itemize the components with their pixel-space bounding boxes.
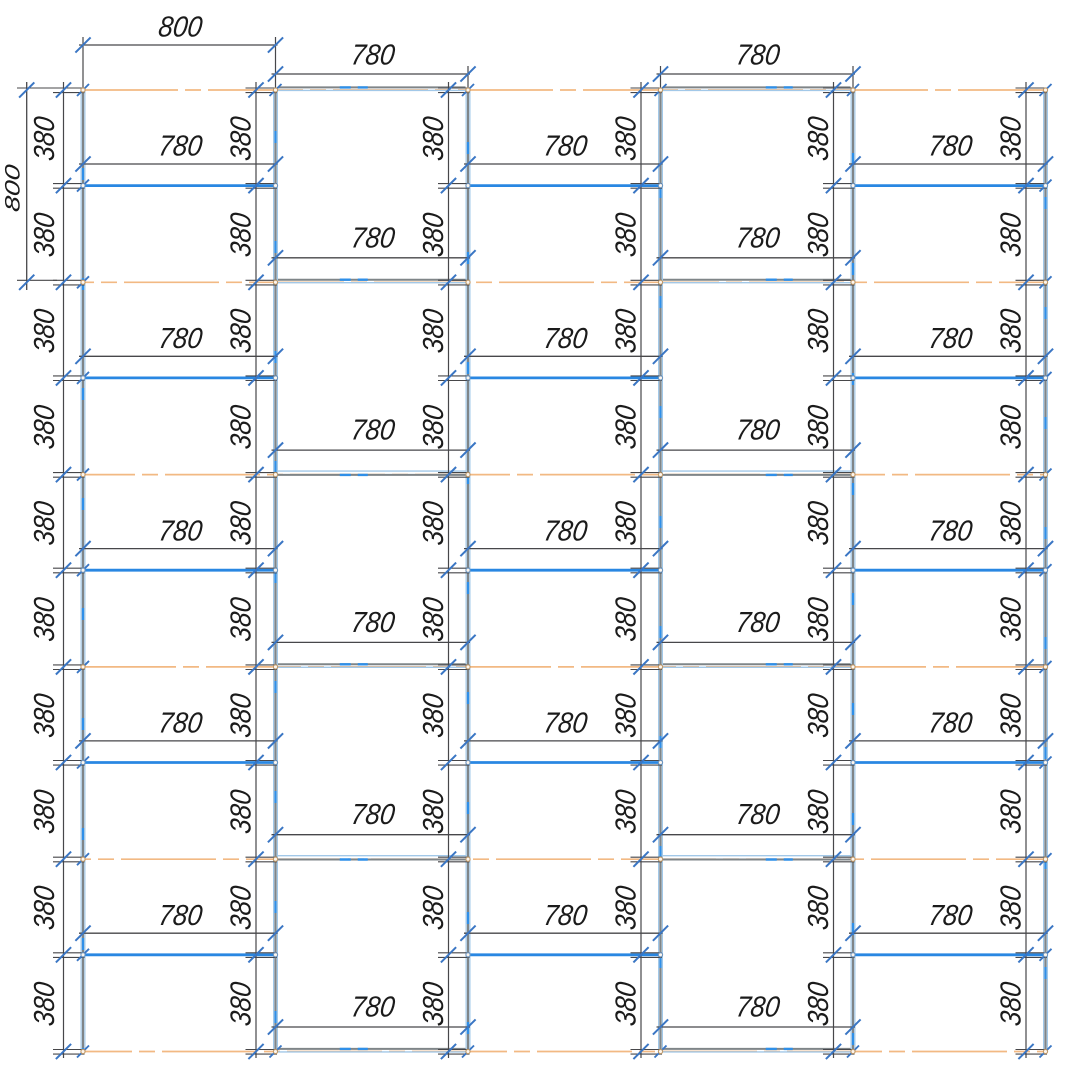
svg-text:780: 780 <box>349 40 396 72</box>
svg-text:800: 800 <box>1 163 24 213</box>
svg-text:380: 380 <box>29 307 61 354</box>
svg-text:380: 380 <box>610 307 642 354</box>
svg-text:380: 380 <box>418 500 450 547</box>
svg-text:380: 380 <box>29 596 61 643</box>
svg-text:780: 780 <box>927 131 974 163</box>
svg-text:380: 380 <box>29 211 61 258</box>
svg-text:380: 380 <box>995 788 1027 835</box>
svg-text:380: 380 <box>610 403 642 450</box>
svg-text:380: 380 <box>803 500 835 547</box>
svg-text:380: 380 <box>610 980 642 1027</box>
svg-text:380: 380 <box>418 980 450 1027</box>
svg-text:780: 780 <box>157 708 204 740</box>
svg-text:380: 380 <box>610 788 642 835</box>
svg-text:780: 780 <box>734 40 781 72</box>
svg-text:380: 380 <box>803 596 835 643</box>
svg-text:380: 380 <box>225 211 257 258</box>
svg-text:380: 380 <box>225 115 257 162</box>
svg-text:380: 380 <box>225 596 257 643</box>
svg-text:380: 380 <box>803 211 835 258</box>
svg-text:380: 380 <box>418 884 450 931</box>
svg-text:380: 380 <box>418 403 450 450</box>
svg-text:380: 380 <box>610 211 642 258</box>
svg-text:780: 780 <box>542 515 589 547</box>
svg-text:380: 380 <box>803 115 835 162</box>
svg-text:380: 380 <box>610 692 642 739</box>
svg-text:380: 380 <box>995 692 1027 739</box>
svg-text:780: 780 <box>349 992 396 1024</box>
svg-text:380: 380 <box>418 692 450 739</box>
svg-text:380: 380 <box>29 500 61 547</box>
svg-text:780: 780 <box>157 131 204 163</box>
svg-text:780: 780 <box>927 323 974 355</box>
svg-text:780: 780 <box>157 323 204 355</box>
svg-text:780: 780 <box>734 222 781 254</box>
svg-text:780: 780 <box>542 708 589 740</box>
svg-text:380: 380 <box>418 211 450 258</box>
svg-text:380: 380 <box>29 884 61 931</box>
svg-text:380: 380 <box>225 980 257 1027</box>
svg-text:380: 380 <box>995 884 1027 931</box>
svg-text:780: 780 <box>157 515 204 547</box>
svg-text:380: 380 <box>29 403 61 450</box>
svg-text:800: 800 <box>157 12 204 44</box>
svg-text:380: 380 <box>225 884 257 931</box>
svg-text:780: 780 <box>349 415 396 447</box>
svg-text:780: 780 <box>349 607 396 639</box>
svg-text:380: 380 <box>995 403 1027 450</box>
svg-text:380: 380 <box>803 307 835 354</box>
svg-text:380: 380 <box>803 980 835 1027</box>
svg-text:780: 780 <box>927 708 974 740</box>
svg-text:780: 780 <box>734 607 781 639</box>
svg-text:780: 780 <box>542 323 589 355</box>
svg-text:380: 380 <box>995 211 1027 258</box>
svg-text:380: 380 <box>418 788 450 835</box>
svg-text:380: 380 <box>225 788 257 835</box>
svg-text:380: 380 <box>610 115 642 162</box>
svg-text:380: 380 <box>225 500 257 547</box>
svg-text:380: 380 <box>418 115 450 162</box>
svg-text:780: 780 <box>542 900 589 932</box>
svg-text:380: 380 <box>803 884 835 931</box>
svg-text:380: 380 <box>29 788 61 835</box>
svg-text:780: 780 <box>157 900 204 932</box>
svg-text:380: 380 <box>995 307 1027 354</box>
svg-text:780: 780 <box>734 415 781 447</box>
svg-text:780: 780 <box>542 131 589 163</box>
svg-text:380: 380 <box>225 692 257 739</box>
svg-text:780: 780 <box>927 515 974 547</box>
svg-text:380: 380 <box>225 307 257 354</box>
svg-text:380: 380 <box>995 115 1027 162</box>
svg-text:380: 380 <box>610 884 642 931</box>
svg-text:380: 380 <box>29 692 61 739</box>
svg-text:380: 380 <box>803 788 835 835</box>
svg-text:380: 380 <box>995 980 1027 1027</box>
svg-text:780: 780 <box>734 799 781 831</box>
svg-text:380: 380 <box>803 403 835 450</box>
svg-text:380: 380 <box>610 596 642 643</box>
svg-text:380: 380 <box>418 307 450 354</box>
svg-text:380: 380 <box>610 500 642 547</box>
svg-text:380: 380 <box>29 980 61 1027</box>
svg-text:380: 380 <box>418 596 450 643</box>
svg-text:780: 780 <box>349 799 396 831</box>
svg-text:380: 380 <box>995 500 1027 547</box>
svg-text:380: 380 <box>225 403 257 450</box>
svg-text:380: 380 <box>29 115 61 162</box>
svg-text:780: 780 <box>927 900 974 932</box>
svg-text:380: 380 <box>803 692 835 739</box>
svg-text:380: 380 <box>995 596 1027 643</box>
svg-text:780: 780 <box>349 222 396 254</box>
svg-text:780: 780 <box>734 992 781 1024</box>
